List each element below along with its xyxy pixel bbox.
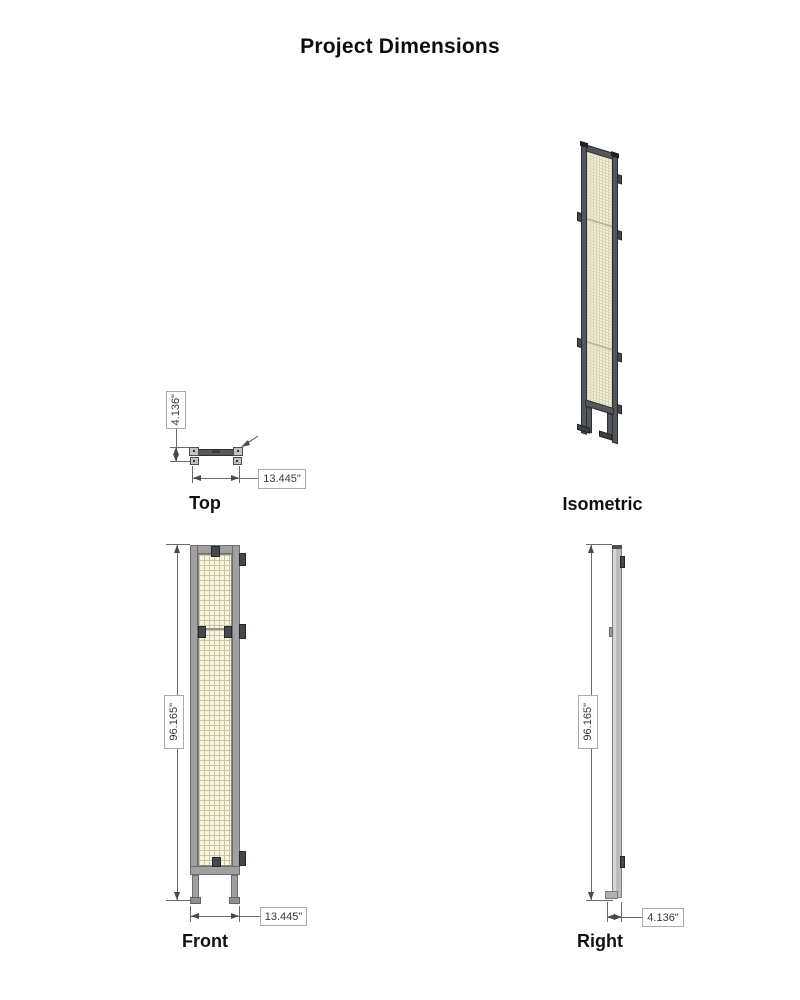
front-width-dim-line <box>190 916 260 917</box>
right-height-dimension-value: 96.165" <box>582 703 594 741</box>
top-depth-dimension-box: 4.136" <box>166 391 186 429</box>
right-depth-dimension-value: 4.136" <box>647 912 678 924</box>
page-title: Project Dimensions <box>0 35 800 59</box>
isometric-view-label: Isometric <box>540 494 665 515</box>
front-clip-top-right <box>239 553 246 566</box>
top-view-label: Top <box>155 493 255 514</box>
left-arrow-icon <box>193 475 201 481</box>
right-clip-mid <box>609 627 613 637</box>
front-width-ext-right <box>239 906 240 922</box>
bolt-hole <box>193 460 195 462</box>
right-depth-dimension-box: 4.136" <box>642 908 684 927</box>
front-right-post <box>232 545 240 875</box>
top-depth-leader-line <box>176 429 177 447</box>
right-ext-line-bottom <box>586 900 613 901</box>
front-height-dimension-value: 96.165" <box>168 703 180 741</box>
leader-arrow-icon <box>238 434 260 450</box>
right-top-cap <box>612 545 622 549</box>
front-width-dimension-box: 13.445" <box>260 907 307 926</box>
front-clip-mid-right <box>224 626 232 638</box>
front-right-foot <box>229 897 240 904</box>
up-arrow-icon <box>588 545 594 553</box>
top-ext-line-lower <box>170 461 192 462</box>
top-center-clip <box>212 450 220 453</box>
right-view-label: Right <box>545 931 655 952</box>
up-arrow-icon <box>174 545 180 553</box>
right-clip-bottom <box>620 856 625 868</box>
front-bottom-rail <box>190 866 240 875</box>
down-arrow-icon <box>588 892 594 900</box>
top-width-dimension-value: 13.445" <box>263 473 301 485</box>
right-foot <box>605 891 618 899</box>
dimension-sheet: { "page": { "title": "Project Dimensions… <box>0 0 800 1000</box>
isometric-view <box>581 143 618 459</box>
front-left-post <box>190 545 198 875</box>
iso-clip <box>617 230 622 241</box>
top-depth-dimension-value: 4.136" <box>170 394 182 425</box>
top-width-ext-right <box>239 466 240 483</box>
bolt-hole <box>236 460 238 462</box>
front-view-label: Front <box>150 931 260 952</box>
right-clip-top <box>620 556 625 568</box>
right-arrow-icon <box>231 913 239 919</box>
down-arrow-icon <box>174 892 180 900</box>
front-ext-line-bottom <box>166 900 190 901</box>
iso-clip <box>617 404 622 415</box>
right-arrow-icon <box>231 475 239 481</box>
left-arrow-icon <box>191 913 199 919</box>
front-clip-bottom-center <box>212 857 221 867</box>
top-width-dim-line <box>192 478 258 479</box>
iso-clip <box>577 338 582 349</box>
iso-right-post <box>612 152 618 444</box>
iso-mesh-pattern <box>587 152 612 408</box>
right-arrow-icon <box>614 914 622 920</box>
front-left-foot <box>190 897 201 904</box>
bolt-hole <box>193 450 195 452</box>
front-clip-mid-left <box>198 626 206 638</box>
iso-clip <box>617 174 622 185</box>
front-clip-mid-outer <box>239 624 246 639</box>
iso-clip <box>577 212 582 223</box>
front-clip-low-outer <box>239 851 246 866</box>
front-clip-top-center <box>211 546 220 557</box>
front-mesh-pattern <box>198 554 232 866</box>
front-width-dimension-value: 13.445" <box>265 911 303 923</box>
right-height-dimension-box: 96.165" <box>578 695 598 749</box>
front-height-dimension-box: 96.165" <box>164 695 184 749</box>
bolt-hole <box>237 450 239 452</box>
iso-clip <box>617 352 622 363</box>
right-panel-profile <box>612 545 622 898</box>
top-width-dimension-box: 13.445" <box>258 469 306 489</box>
